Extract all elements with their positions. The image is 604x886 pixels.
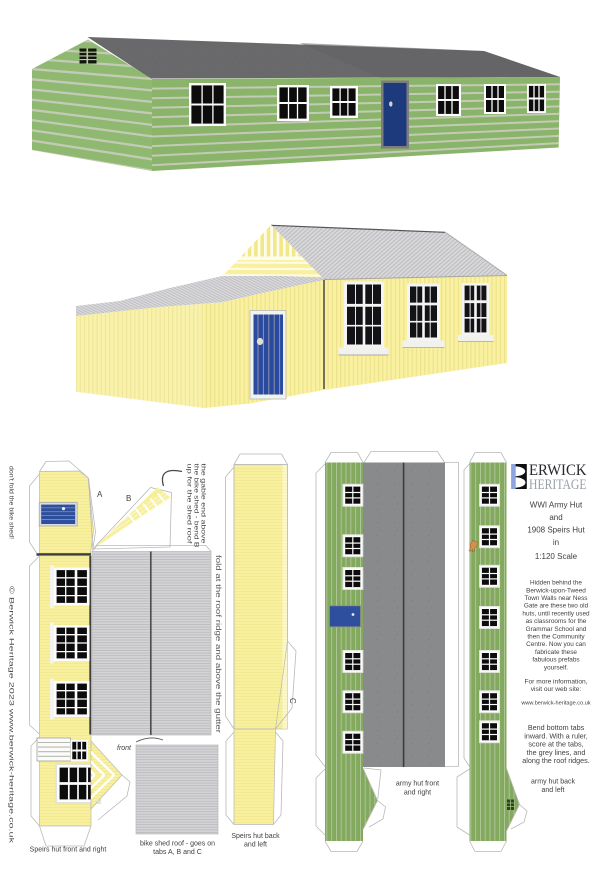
svg-text:yourself.: yourself. [544, 664, 568, 671]
svg-text:and: and [549, 513, 562, 522]
svg-text:Centre. Now you can: Centre. Now you can [526, 641, 586, 648]
svg-text:Gate are these two old: Gate are these two old [524, 603, 589, 610]
svg-text:visit our web site:: visit our web site: [531, 686, 582, 693]
svg-text:fabulous prefabs: fabulous prefabs [532, 657, 579, 664]
svg-text:Hidden behind the: Hidden behind the [530, 580, 582, 587]
svg-text:For more information,: For more information, [524, 678, 587, 685]
svg-text:bike shed roof - goes on: bike shed roof - goes on [140, 841, 215, 848]
svg-text:C: C [288, 698, 297, 704]
svg-text:HERITAGE: HERITAGE [529, 477, 587, 493]
svg-text:WWI Army Hut: WWI Army Hut [530, 501, 583, 510]
svg-text:front: front [117, 745, 132, 752]
svg-text:the gable end above: the gable end above [200, 464, 207, 544]
svg-text:don't fold the bike shed!: don't fold the bike shed! [8, 466, 15, 539]
svg-text:army hut back: army hut back [531, 779, 575, 786]
svg-text:Grammar School and: Grammar School and [526, 626, 587, 633]
svg-text:www.berwick-heritage.co.uk: www.berwick-heritage.co.uk [520, 700, 591, 706]
svg-text:then the Community: then the Community [527, 634, 585, 641]
svg-text:the bike shed - bend B: the bike shed - bend B [193, 464, 200, 549]
svg-text:B: B [126, 494, 131, 503]
svg-text:fabricate these: fabricate these [535, 649, 577, 656]
svg-text:and left: and left [542, 787, 565, 794]
svg-text:up for the shed roof: up for the shed roof [186, 464, 193, 544]
svg-text:Berwick-upon-Tweed: Berwick-upon-Tweed [526, 587, 586, 594]
svg-text:Speirs hut front and right: Speirs hut front and right [30, 847, 107, 854]
svg-text:and right: and right [404, 790, 431, 797]
svg-text:as classrooms for the: as classrooms for the [526, 618, 587, 625]
svg-text:1908 Speirs Hut: 1908 Speirs Hut [527, 526, 585, 535]
svg-text:army hut front: army hut front [396, 781, 439, 788]
svg-text:Speirs hut back: Speirs hut back [231, 833, 280, 840]
svg-text:tabs A, B and C: tabs A, B and C [153, 849, 202, 856]
svg-text:© Berwick Heritage 2023 www.be: © Berwick Heritage 2023 www.berwick-heri… [8, 586, 16, 844]
svg-text:fold at the roof ridge and abo: fold at the roof ridge and above the gut… [214, 555, 223, 734]
svg-text:in: in [553, 538, 559, 547]
svg-text:along the roof ridges.: along the roof ridges. [522, 756, 590, 765]
svg-text:and left: and left [244, 842, 267, 849]
svg-text:Town Walls near Ness: Town Walls near Ness [525, 595, 588, 602]
svg-text:1:120 Scale: 1:120 Scale [535, 552, 578, 561]
svg-text:huts, until recently used: huts, until recently used [522, 610, 590, 617]
svg-text:A: A [97, 490, 103, 499]
